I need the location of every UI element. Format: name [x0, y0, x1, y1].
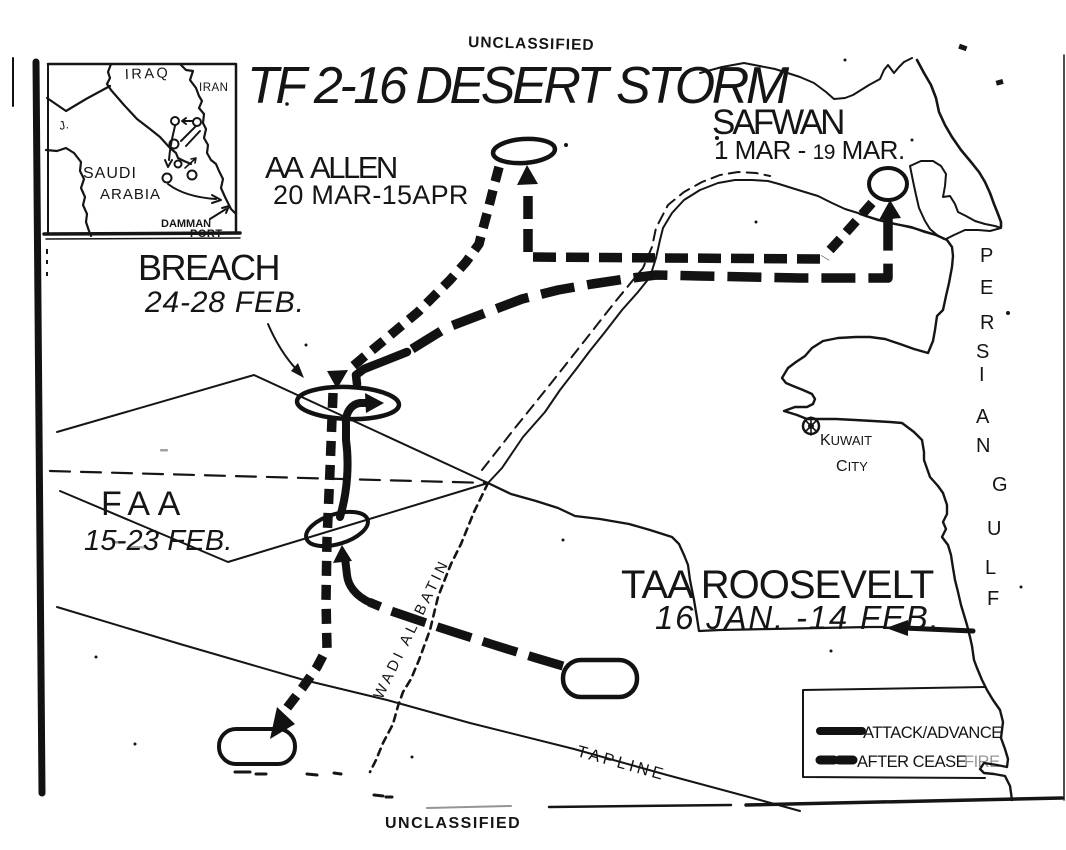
svg-text:R: R: [980, 312, 994, 334]
svg-text:FAA: FAA: [101, 485, 188, 523]
svg-text:E: E: [980, 277, 993, 299]
svg-text:N: N: [976, 435, 990, 457]
svg-text:FIRE: FIRE: [964, 753, 1000, 771]
svg-text:CITY: CITY: [836, 458, 868, 475]
svg-text:20 MAR-15APR: 20 MAR-15APR: [273, 180, 469, 210]
svg-text:J.: J.: [58, 117, 70, 133]
svg-text:IRAQ: IRAQ: [125, 65, 171, 83]
svg-text:S: S: [976, 341, 989, 363]
svg-text:BREACH: BREACH: [138, 247, 279, 288]
svg-text:F: F: [987, 588, 999, 610]
svg-text:ARABIA: ARABIA: [100, 186, 161, 203]
svg-text:TAPLINE: TAPLINE: [575, 743, 669, 785]
svg-text:ATTACK/ADVANCE: ATTACK/ADVANCE: [863, 724, 1002, 742]
svg-text:TF 2-16 DESERT STORM: TF 2-16 DESERT STORM: [247, 57, 790, 115]
svg-text:A: A: [976, 406, 990, 428]
svg-text:24-28 FEB.: 24-28 FEB.: [144, 286, 305, 319]
svg-text:1 MAR - 19 MAR.: 1 MAR - 19 MAR.: [714, 135, 905, 165]
svg-text:I: I: [979, 364, 985, 386]
svg-text:PORT: PORT: [190, 228, 223, 240]
svg-text:KUWAIT: KUWAIT: [820, 432, 872, 449]
svg-text:UNCLASSIFIED: UNCLASSIFIED: [468, 34, 595, 54]
svg-text:G: G: [992, 474, 1008, 496]
svg-text:U: U: [987, 518, 1001, 540]
svg-text:UNCLASSIFIED: UNCLASSIFIED: [385, 815, 521, 832]
svg-text:IRAN: IRAN: [199, 82, 228, 94]
svg-text:16 JAN. -14 FEB.: 16 JAN. -14 FEB.: [655, 599, 941, 636]
svg-text:15-23 FEB.: 15-23 FEB.: [84, 525, 233, 557]
svg-text:SAUDI: SAUDI: [83, 165, 137, 182]
svg-text:AFTER CEASE: AFTER CEASE: [857, 753, 967, 771]
svg-text:P: P: [980, 245, 993, 267]
svg-text:L: L: [985, 557, 996, 579]
